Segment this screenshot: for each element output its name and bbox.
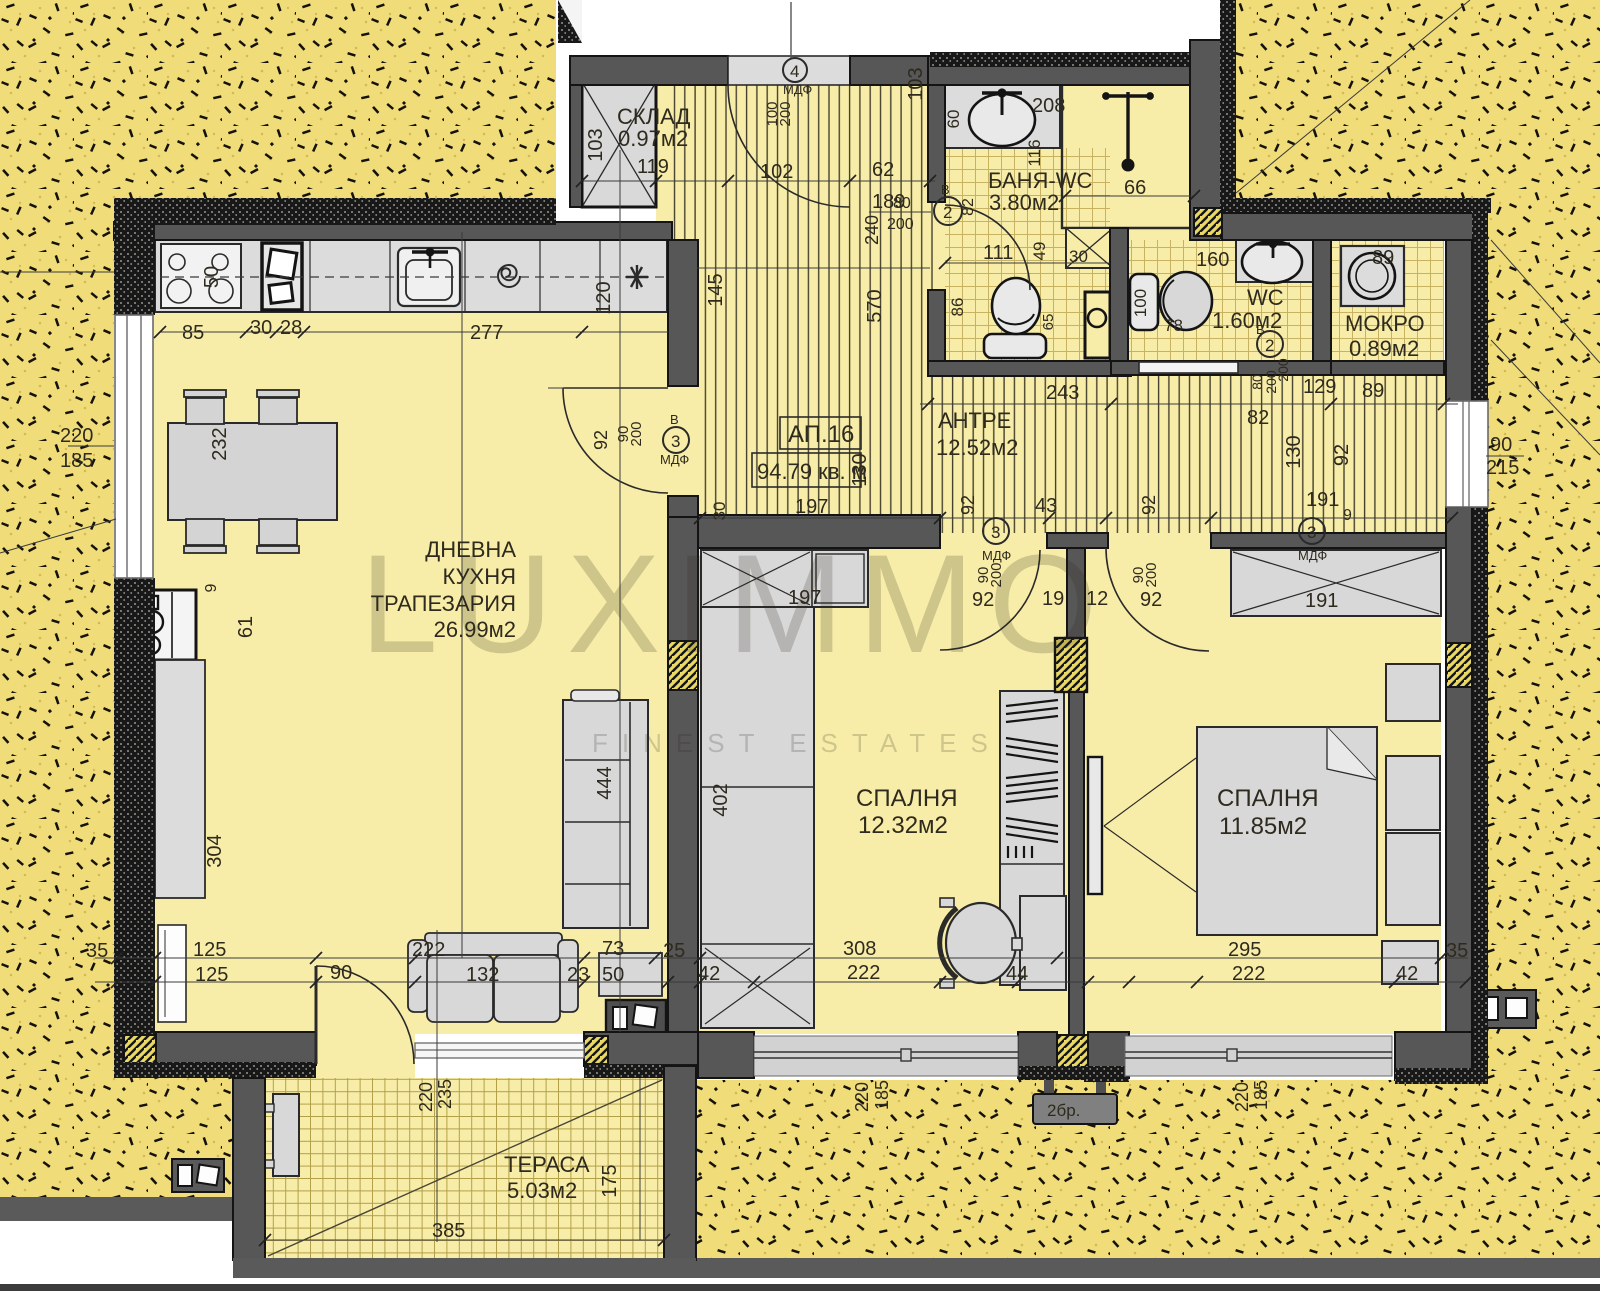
svg-text:9: 9 (203, 583, 220, 592)
svg-text:МДФ: МДФ (660, 452, 689, 467)
svg-text:11.85м2: 11.85м2 (1219, 813, 1307, 840)
svg-text:191: 191 (1306, 489, 1339, 511)
svg-text:65: 65 (1040, 314, 1057, 331)
svg-text:LUXIMMO: LUXIMMO (360, 525, 1111, 682)
svg-text:125: 125 (193, 939, 226, 961)
svg-text:220: 220 (416, 1082, 436, 1112)
svg-text:3.80м2: 3.80м2 (989, 190, 1059, 215)
svg-text:200: 200 (628, 421, 645, 446)
svg-text:73: 73 (602, 938, 624, 960)
svg-text:145: 145 (705, 273, 727, 306)
svg-text:220: 220 (852, 1082, 872, 1112)
svg-text:61: 61 (235, 616, 257, 638)
svg-text:89: 89 (1372, 247, 1394, 269)
svg-text:200: 200 (777, 101, 794, 126)
svg-text:82: 82 (1247, 407, 1269, 429)
svg-text:FINEST ESTATES: FINEST ESTATES (592, 728, 1002, 758)
svg-text:85: 85 (182, 322, 204, 344)
svg-text:80: 80 (893, 195, 911, 212)
svg-text:385: 385 (432, 1220, 465, 1242)
svg-text:125: 125 (195, 964, 228, 986)
svg-text:МДФ: МДФ (783, 82, 812, 97)
svg-text:В: В (941, 182, 950, 197)
svg-text:25: 25 (663, 940, 685, 962)
svg-text:WC: WC (1247, 285, 1284, 310)
svg-text:62: 62 (872, 159, 894, 181)
svg-text:200: 200 (1143, 562, 1160, 587)
svg-text:1.60м2: 1.60м2 (1212, 308, 1282, 333)
svg-text:308: 308 (843, 938, 876, 960)
svg-text:116: 116 (1025, 139, 1044, 166)
svg-text:215: 215 (1486, 457, 1519, 479)
svg-text:АНТРЕ: АНТРЕ (938, 408, 1011, 433)
svg-text:111: 111 (983, 242, 1013, 264)
svg-text:129: 129 (1303, 376, 1336, 398)
svg-text:119: 119 (637, 156, 669, 178)
svg-text:30: 30 (710, 502, 729, 521)
svg-text:444: 444 (594, 766, 616, 799)
svg-text:МДФ: МДФ (1298, 548, 1327, 563)
svg-text:102: 102 (760, 161, 793, 183)
svg-text:2бр.: 2бр. (1047, 1101, 1080, 1120)
svg-text:ТЕРАСА: ТЕРАСА (504, 1152, 590, 1177)
svg-text:4: 4 (790, 62, 799, 81)
svg-text:92: 92 (591, 430, 611, 450)
svg-text:9: 9 (1343, 507, 1352, 524)
svg-text:28: 28 (280, 317, 302, 339)
svg-text:570: 570 (864, 289, 886, 322)
svg-text:3: 3 (671, 432, 680, 451)
svg-text:277: 277 (470, 322, 503, 344)
svg-text:30: 30 (1069, 247, 1088, 266)
svg-text:103: 103 (585, 128, 607, 161)
svg-text:130: 130 (1283, 435, 1305, 468)
svg-text:66: 66 (1124, 177, 1146, 199)
svg-text:197: 197 (795, 496, 828, 518)
svg-text:120: 120 (593, 281, 615, 314)
svg-text:235: 235 (435, 1079, 455, 1109)
svg-text:222: 222 (1232, 963, 1265, 985)
svg-text:92: 92 (1140, 589, 1162, 611)
svg-text:44: 44 (1006, 963, 1028, 985)
svg-text:0.97м2: 0.97м2 (618, 126, 688, 151)
svg-text:АП.16: АП.16 (788, 421, 854, 448)
svg-text:35: 35 (1446, 940, 1468, 962)
svg-text:82: 82 (960, 198, 977, 216)
svg-text:СПАЛНЯ: СПАЛНЯ (856, 785, 958, 812)
svg-text:50: 50 (201, 266, 223, 288)
svg-text:12.32м2: 12.32м2 (858, 812, 948, 839)
svg-text:90: 90 (1490, 434, 1512, 456)
svg-text:220: 220 (1232, 1082, 1252, 1112)
svg-text:2: 2 (943, 203, 952, 222)
svg-text:100: 100 (1131, 289, 1150, 317)
svg-text:160: 160 (1196, 249, 1229, 271)
svg-text:175: 175 (599, 1164, 621, 1197)
svg-text:МОКРО: МОКРО (1345, 311, 1425, 336)
svg-text:42: 42 (698, 963, 720, 985)
svg-text:222: 222 (847, 962, 880, 984)
svg-text:23: 23 (567, 964, 589, 986)
svg-text:49: 49 (1030, 242, 1049, 261)
svg-text:92: 92 (1139, 495, 1159, 515)
svg-text:89: 89 (1362, 380, 1384, 402)
svg-text:5.03м2: 5.03м2 (507, 1178, 577, 1203)
svg-text:30: 30 (250, 317, 272, 339)
svg-text:130: 130 (849, 453, 871, 486)
svg-text:0.89м2: 0.89м2 (1349, 336, 1419, 361)
svg-text:220: 220 (60, 425, 93, 447)
svg-text:3: 3 (1307, 523, 1316, 542)
svg-text:103: 103 (905, 67, 927, 100)
svg-text:78: 78 (1164, 316, 1183, 335)
svg-text:185: 185 (872, 1080, 892, 1110)
svg-text:222: 222 (412, 939, 445, 961)
svg-text:243: 243 (1046, 382, 1079, 404)
svg-text:60: 60 (944, 110, 963, 129)
svg-text:42: 42 (1396, 963, 1418, 985)
svg-text:295: 295 (1228, 939, 1261, 961)
svg-text:50: 50 (602, 964, 624, 986)
svg-text:12.52м2: 12.52м2 (936, 435, 1018, 460)
svg-text:200: 200 (1275, 358, 1291, 382)
svg-text:402: 402 (710, 783, 732, 816)
svg-text:240: 240 (862, 215, 882, 245)
svg-text:191: 191 (1305, 590, 1338, 612)
svg-text:86: 86 (948, 298, 967, 317)
svg-text:43: 43 (1035, 495, 1057, 517)
svg-text:2: 2 (1265, 336, 1274, 355)
svg-text:90: 90 (330, 962, 352, 984)
svg-text:232: 232 (209, 427, 231, 460)
svg-text:304: 304 (204, 834, 226, 867)
svg-text:92: 92 (958, 495, 978, 515)
svg-text:35: 35 (86, 940, 108, 962)
svg-text:В: В (670, 412, 679, 427)
svg-text:92: 92 (1331, 444, 1353, 466)
svg-text:185: 185 (60, 450, 93, 472)
svg-text:200: 200 (887, 216, 914, 233)
svg-text:185: 185 (1251, 1080, 1271, 1110)
svg-text:СПАЛНЯ: СПАЛНЯ (1217, 785, 1319, 812)
svg-text:208: 208 (1032, 95, 1065, 117)
svg-text:132: 132 (466, 964, 499, 986)
